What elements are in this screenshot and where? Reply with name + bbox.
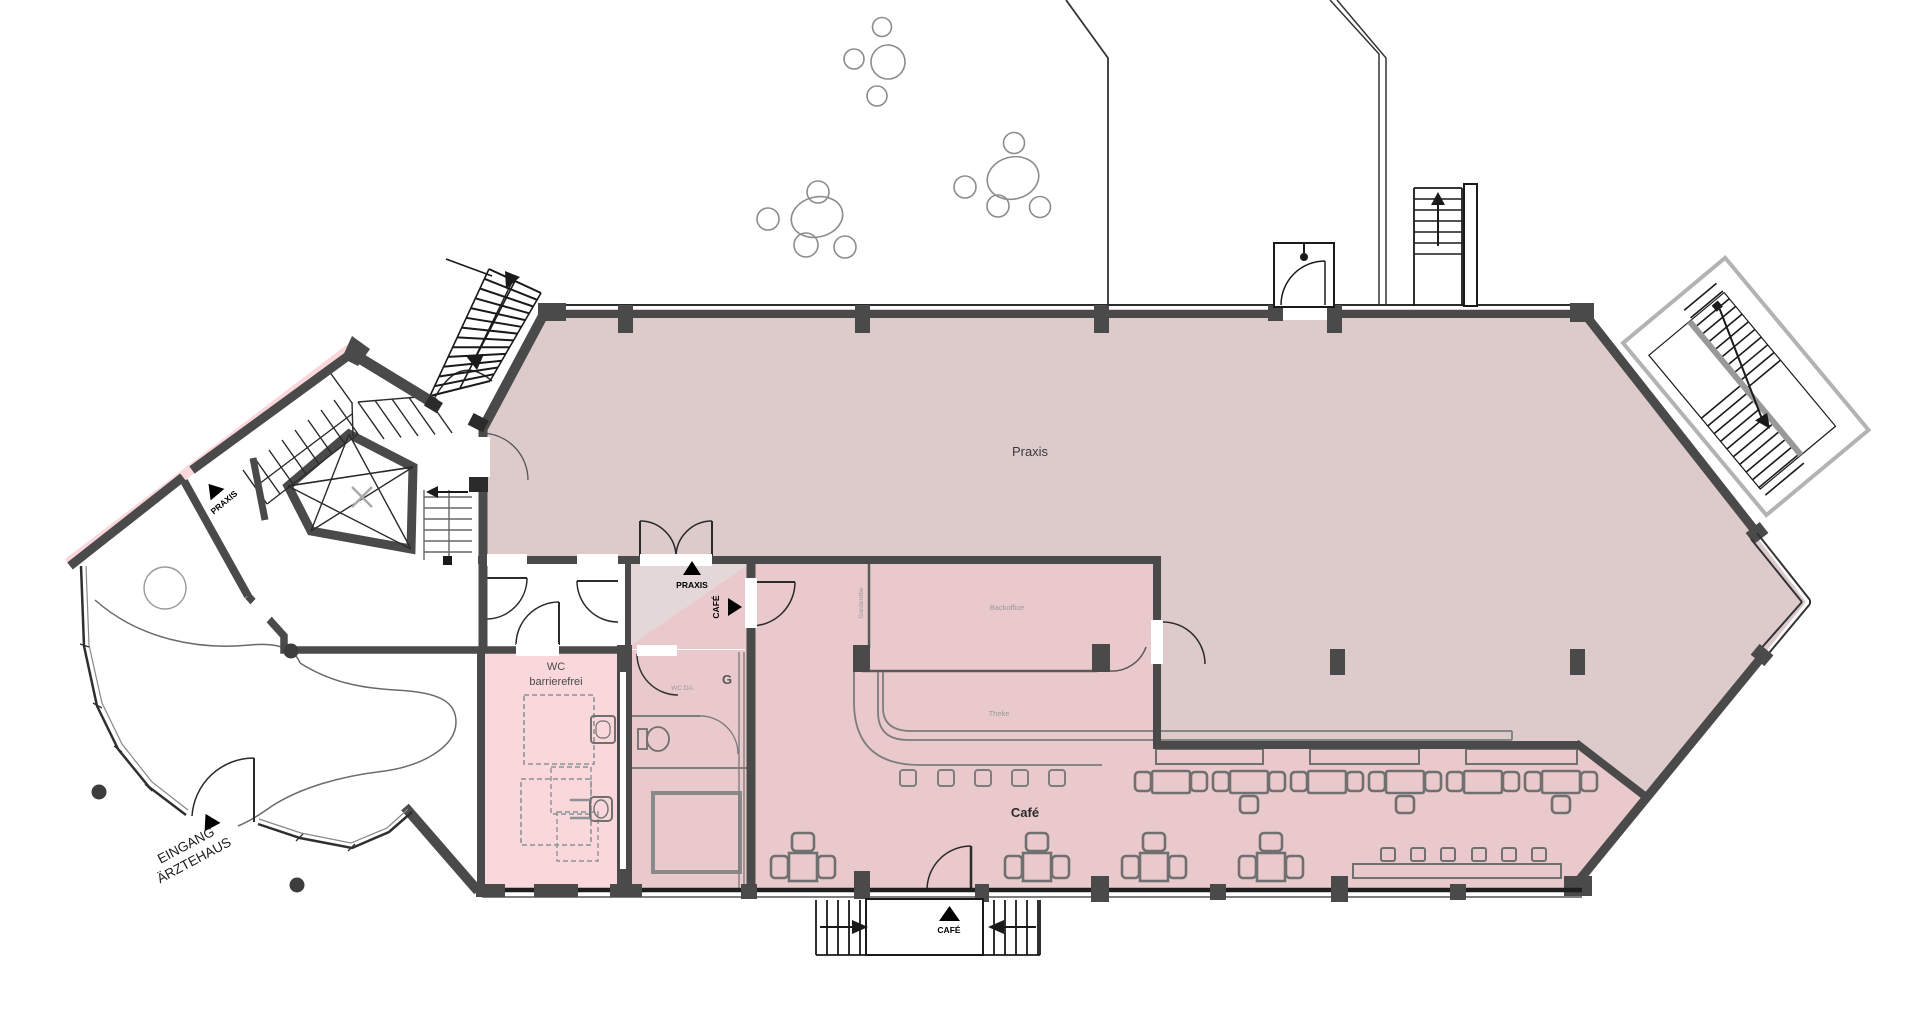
svg-text:Theke: Theke [989, 709, 1010, 718]
svg-text:Praxis: Praxis [1012, 444, 1049, 459]
svg-text:Café: Café [1011, 805, 1039, 820]
svg-text:WC: WC [547, 661, 565, 673]
svg-text:WC DA.: WC DA. [671, 685, 695, 692]
svg-text:CAFÉ: CAFÉ [711, 595, 721, 618]
svg-text:PRAXIS: PRAXIS [676, 580, 708, 590]
svg-text:CAFÉ: CAFÉ [937, 925, 960, 935]
svg-text:G: G [722, 672, 732, 687]
svg-text:Backoffice: Backoffice [990, 603, 1024, 612]
svg-text:barrierefrei: barrierefrei [529, 676, 582, 688]
svg-text:Garderobe: Garderobe [858, 587, 865, 618]
